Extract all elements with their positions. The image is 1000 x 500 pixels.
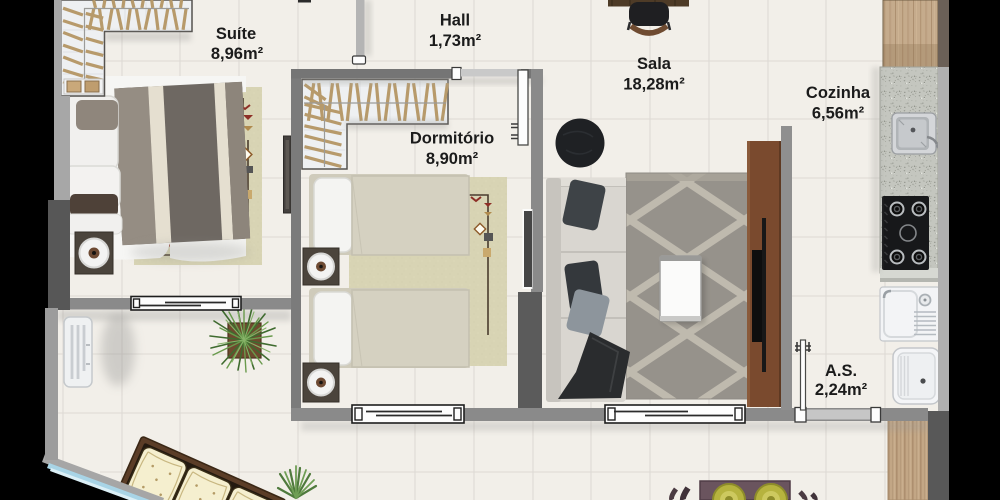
svg-text:18,28m²: 18,28m² — [623, 76, 685, 94]
svg-text:Dormitório: Dormitório — [410, 130, 494, 148]
svg-text:Suíte: Suíte — [216, 25, 256, 43]
svg-text:8,96m²: 8,96m² — [211, 45, 264, 63]
svg-text:Cozinha: Cozinha — [806, 84, 871, 102]
svg-text:Sala: Sala — [637, 55, 672, 73]
svg-text:Hall: Hall — [440, 12, 470, 30]
svg-text:6,56m²: 6,56m² — [812, 105, 865, 123]
svg-text:2,24m²: 2,24m² — [815, 381, 868, 399]
svg-text:A.S.: A.S. — [825, 362, 857, 380]
svg-text:1,73m²: 1,73m² — [429, 32, 482, 50]
svg-text:8,90m²: 8,90m² — [426, 150, 479, 168]
